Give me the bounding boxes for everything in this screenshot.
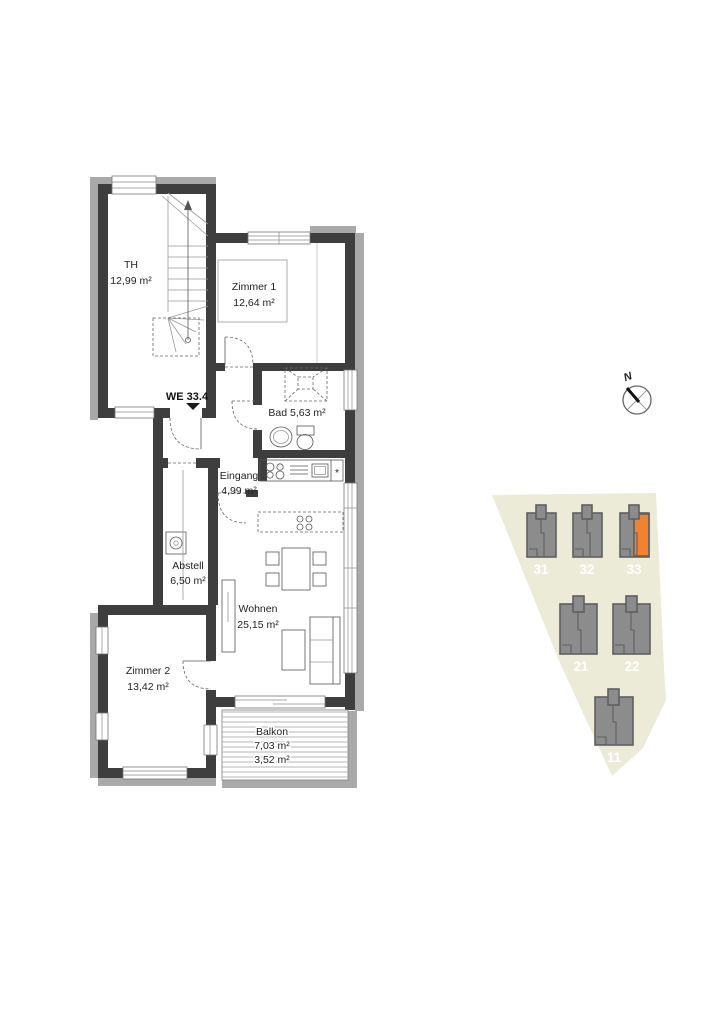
compass-north-label: N [622, 370, 635, 384]
room-labels: TH 12,99 m² Zimmer 1 12,64 m² Bad 5,63 m… [110, 259, 326, 766]
door-apartment-entry [170, 418, 201, 449]
window-th-top [112, 176, 156, 194]
sink [270, 427, 292, 447]
window-zimmer2-bottom [123, 767, 187, 779]
dining-set [266, 548, 326, 590]
toilet [297, 426, 314, 450]
kitchen-island [258, 512, 343, 532]
site-building-33-label: 33 [626, 562, 642, 577]
room-area-abstell: 6,50 m² [170, 575, 206, 587]
entry-arrow-icon [186, 403, 200, 410]
highlighted-unit [634, 514, 649, 556]
furniture [166, 243, 340, 684]
site-building-32-label: 32 [579, 562, 594, 577]
window-zimmer2-balcony [204, 725, 217, 755]
room-label-zimmer2: Zimmer 2 [126, 665, 170, 677]
room-area-th: 12,99 m² [110, 275, 152, 287]
room-area-balkon-half: 3,52 m² [254, 754, 290, 766]
staircase [153, 193, 208, 356]
sofa [310, 617, 340, 684]
unit-label: WE 33.4 [166, 391, 209, 403]
window-th-bottom [115, 407, 154, 418]
room-label-balkon: Balkon [256, 726, 288, 738]
unit-marker: WE 33.4 [166, 391, 209, 410]
dish-rack [290, 466, 308, 474]
door-zimmer2 [183, 661, 211, 689]
room-label-th: TH [124, 259, 138, 271]
site-building-21-label: 21 [573, 659, 589, 674]
cabinet [222, 580, 235, 652]
window-zimmer1-top [248, 232, 310, 244]
compass-needle-icon [627, 388, 639, 402]
plan-sheet: * [0, 0, 724, 1024]
site-building-31-label: 31 [533, 562, 549, 577]
site-building-22-label: 22 [624, 659, 639, 674]
window-wohnen-right [344, 483, 357, 673]
room-area-zimmer1: 12,64 m² [233, 297, 275, 309]
room-label-zimmer1: Zimmer 1 [232, 281, 276, 293]
door-bad [232, 401, 258, 429]
coffee-table [282, 630, 305, 670]
shower [285, 368, 327, 401]
kitchen-note: * [335, 467, 339, 479]
kitchen-fixtures: * [258, 460, 343, 532]
room-label-bad: Bad 5,63 m² [268, 407, 326, 419]
stove [266, 463, 284, 479]
room-label-wohnen: Wohnen [239, 603, 278, 615]
room-label-abstell: Abstell [172, 560, 204, 572]
kitchen-sink [312, 464, 328, 477]
door-wohnen [218, 493, 246, 523]
room-label-eingang: Eingang [220, 470, 259, 482]
floor-plan: * [90, 176, 364, 788]
site-plan: 31 32 33 21 [492, 493, 666, 776]
room-area-eingang: 4,99 m² [221, 485, 257, 497]
window-zimmer2-left-1 [96, 627, 108, 654]
room-area-balkon-full: 7,03 m² [254, 740, 290, 752]
window-bad-right [344, 370, 357, 410]
room-area-zimmer2: 13,42 m² [127, 681, 169, 693]
site-building-11-label: 11 [607, 750, 622, 765]
room-area-wohnen: 25,15 m² [237, 619, 279, 631]
door-zimmer1 [225, 337, 253, 367]
compass: N [622, 370, 651, 414]
window-zimmer2-left-2 [96, 713, 108, 740]
window-balcony-slider [235, 696, 325, 708]
